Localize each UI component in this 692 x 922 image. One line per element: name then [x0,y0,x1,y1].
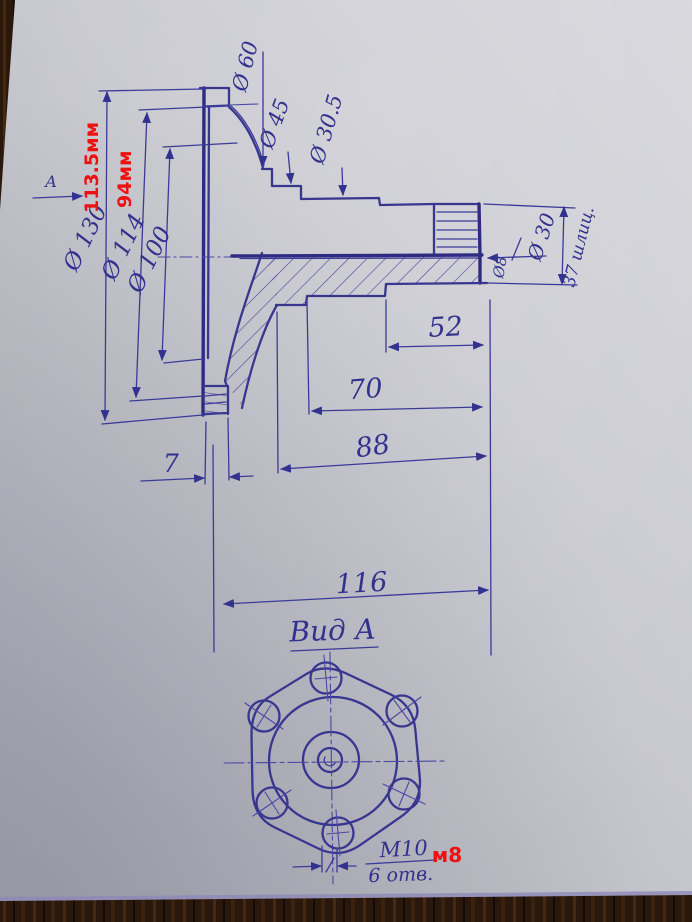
bottom-view-title: Вид А [288,613,377,649]
view-arrow-label: А [44,172,57,191]
thread-label: М10 [378,836,428,863]
red-bolt-circle-diameter: 94мм [114,150,136,208]
dim-label-7: 7 [163,449,179,478]
dim-label-88: 88 [354,429,392,464]
holes-count-label: 6 отв. [368,863,433,887]
dim-label-116: 116 [335,567,388,601]
photo-of-hand-drawn-blueprint: А Ø 130 Ø 114 Ø 100 Ø 60 Ø 45 [0,0,692,922]
red-thread-correction: м8 [432,843,462,867]
dim-label-70: 70 [347,373,383,406]
dim-label-52: 52 [428,311,464,344]
red-flange-diameter: 113.5мм [81,122,103,213]
